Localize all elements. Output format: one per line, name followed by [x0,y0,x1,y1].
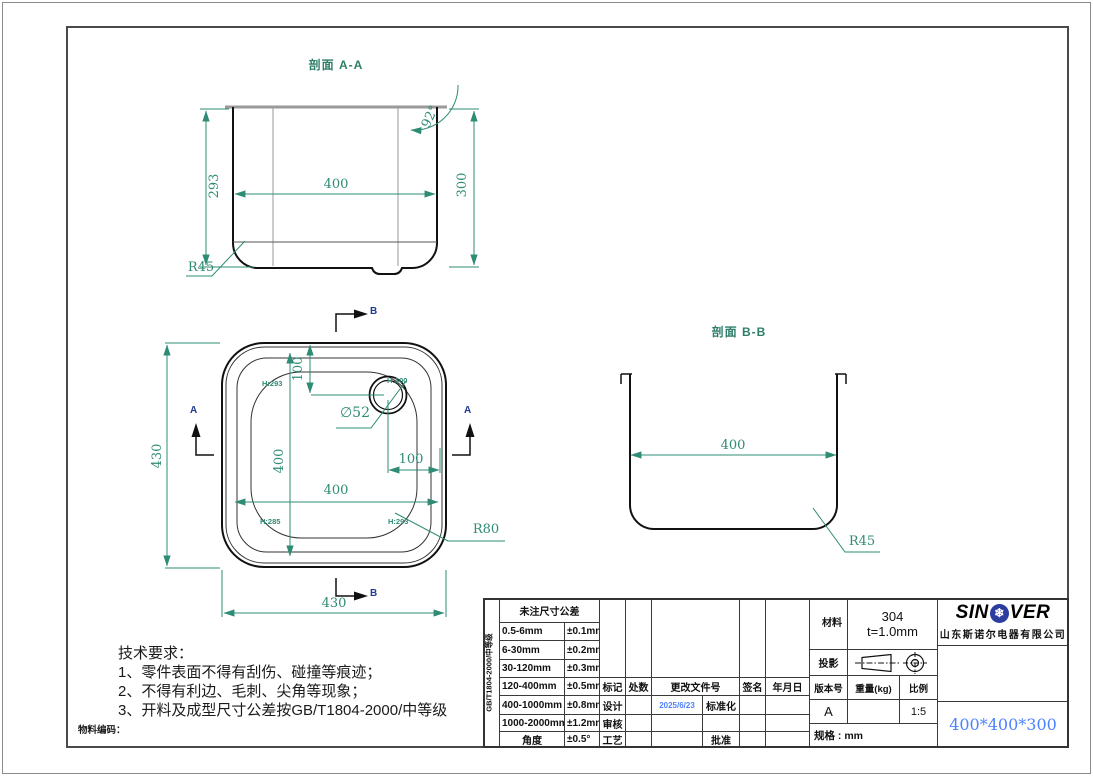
tech-note-2: 2、不得有利边、毛刺、尖角等现象； [118,682,498,701]
drawing-sheet: 剖面 A-A 剖面 B-B 293 400 300 92° R45 430 43… [0,0,1093,778]
scale-label: 比例 [900,676,938,700]
material-value-cell: 304 t=1.0mm [848,598,938,650]
dim-bb-radius: R45 [844,535,880,549]
tech-notes-title: 技术要求： [118,644,498,663]
section-marker-a-left: A [190,405,197,416]
tolerance-value: ±1.2mm [565,715,600,732]
review-empty-cell [652,715,703,732]
tolerance-range: 400-1000mm [500,696,565,715]
review-empty-cell [703,715,740,732]
tolerance-value: ±0.5mm [565,678,600,696]
revision-empty-cell [626,598,652,678]
dim-aa-height-left: 293 [208,170,222,202]
projection-symbol-cell [848,650,938,676]
review-empty-cell [766,715,810,732]
material-label-cell: 材料 [810,598,848,650]
brand-logo-right-text: VER [1010,602,1051,624]
tolerance-range-angle: 角度 [500,732,565,748]
review-empty-cell [626,715,652,732]
brand-cell: SIN ❄ VER 山东斯诺尔电器有限公司 [938,598,1069,646]
process-label: 工艺 [600,732,626,748]
tech-note-1: 1、零件表面不得有刮伤、碰撞等痕迹； [118,663,498,682]
tolerance-standard-cell: GB/T1804-2000/中等级 [483,598,500,748]
part-size-value: 400*400*300 [949,715,1057,734]
plan-height-label-br: H:293 [388,517,408,526]
material-value: 304 [882,609,904,624]
dim-aa-width: 400 [316,178,356,192]
standardization-label: 标准化 [703,696,740,715]
version-value: A [810,700,848,724]
revision-col-mark: 标记 [600,678,626,696]
tolerance-value: ±0.3mm [565,660,600,678]
section-marker-b-top: B [370,306,377,317]
dim-plan-hole-horizontal: 100 [393,453,429,467]
revision-col-date: 年月日 [766,678,810,696]
weight-label: 重量(kg) [848,676,900,700]
dim-aa-angle: 92° [418,100,444,135]
tolerance-range: 6-30mm [500,641,565,660]
plan-view-geometry [165,310,505,618]
dim-plan-hole-vertical: 100 [292,353,306,385]
process-empty-cell [652,732,703,748]
revision-empty-cell [652,598,740,678]
revision-empty-cell [740,598,766,678]
review-label: 审核 [600,715,626,732]
section-aa-title: 剖面 A-A [298,56,374,73]
section-bb-title: 剖面 B-B [701,323,777,340]
tolerance-value: ±0.1mm [565,623,600,641]
snowflake-logo-icon: ❄ [990,604,1009,623]
approve-empty-cell [766,732,810,748]
approve-label: 批准 [703,732,740,748]
revision-empty-cell [766,598,810,678]
tolerance-value-angle: ±0.5° [565,732,600,748]
weight-value-empty [848,700,900,724]
dim-aa-radius: R45 [184,261,218,275]
revision-col-doc: 更改文件号 [652,678,740,696]
dim-aa-height-right: 300 [456,169,470,201]
design-date-empty [766,696,810,715]
technical-requirements: 技术要求： 1、零件表面不得有刮伤、碰撞等痕迹； 2、不得有利边、毛刺、尖角等现… [118,644,498,720]
design-empty-cell [626,696,652,715]
dim-bb-width: 400 [713,439,753,453]
tolerance-range: 30-120mm [500,660,565,678]
brand-company-name: 山东斯诺尔电器有限公司 [940,626,1067,641]
section-marker-a-right: A [464,405,471,416]
section-bb-geometry [621,374,880,552]
dim-plan-hole-diameter: ∅52 [333,406,377,420]
section-marker-b-bottom: B [370,588,377,599]
tech-note-3: 3、开料及成型尺寸公差按GB/T1804-2000/中等级 [118,701,498,720]
design-date: 2025/6/23 [659,701,695,710]
revision-col-count: 处数 [626,678,652,696]
scale-value: 1:5 [900,700,938,724]
dim-plan-corner-radius: R80 [468,523,504,537]
projection-label: 投影 [810,650,848,676]
brand-logo: SIN ❄ VER [956,602,1051,624]
tolerance-standard-vertical-text: GB/T1804-2000/中等级 [484,598,501,748]
spec-label: 规格 : mm [810,724,938,748]
brand-logo-left-text: SIN [956,602,989,624]
version-label: 版本号 [810,676,848,700]
design-date-cell: 2025/6/23 [652,696,703,715]
material-thickness: t=1.0mm [867,624,918,639]
dim-plan-inner-horizontal: 400 [316,484,356,498]
first-angle-projection-icon [849,651,937,675]
material-code-label: 物料编码： [78,722,126,736]
tolerance-range: 0.5-6mm [500,623,565,641]
process-empty-cell [626,732,652,748]
plan-height-label-tr: H:300 [387,376,407,385]
material-label: 材料 [822,618,835,629]
tolerance-range: 120-400mm [500,678,565,696]
tolerance-header: 未注尺寸公差 [500,598,600,623]
tolerance-value: ±0.8mm [565,696,600,715]
part-size-cell: 400*400*300 [938,702,1069,748]
plan-height-label-tl: H:293 [262,379,282,388]
revision-col-sign: 签名 [740,678,766,696]
tolerance-value: ±0.2mm [565,641,600,660]
design-label: 设计 [600,696,626,715]
design-sign-empty [740,696,766,715]
drawing-name-empty-cell [938,646,1069,702]
revision-empty-cell [600,598,626,678]
approve-empty-cell [740,732,766,748]
dim-plan-outer-height: 430 [151,440,165,472]
review-empty-cell [740,715,766,732]
title-block: GB/T1804-2000/中等级 未注尺寸公差 0.5-6mm ±0.1mm … [483,598,1069,748]
plan-height-label-bl: H:285 [260,517,280,526]
dim-plan-outer-width: 430 [314,597,354,611]
tolerance-range: 1000-2000mm [500,715,565,732]
dim-plan-inner-vertical: 400 [273,445,287,477]
